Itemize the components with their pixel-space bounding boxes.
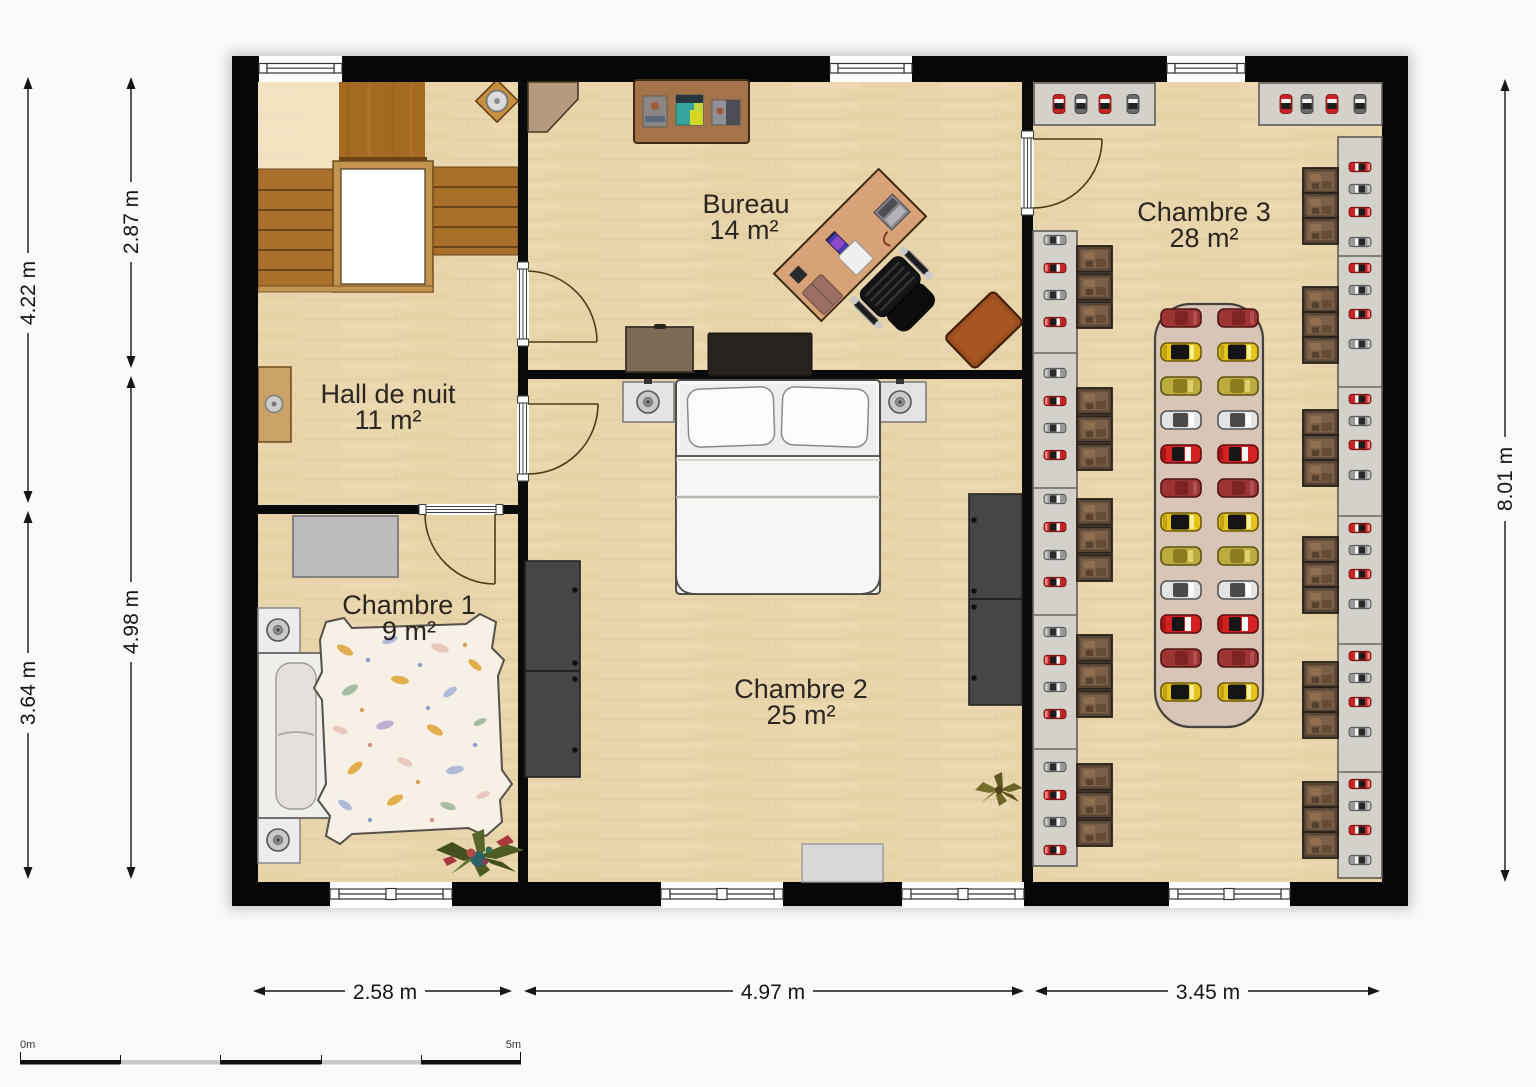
svg-text:2.58 m: 2.58 m: [353, 981, 417, 1004]
svg-text:8.01 m: 8.01 m: [1494, 447, 1517, 511]
svg-text:2.87 m: 2.87 m: [120, 190, 143, 254]
svg-text:4.22 m: 4.22 m: [17, 261, 40, 325]
svg-text:3.45 m: 3.45 m: [1176, 981, 1240, 1004]
svg-text:5m: 5m: [506, 1039, 521, 1051]
svg-text:4.97 m: 4.97 m: [741, 981, 805, 1004]
svg-text:14 m²: 14 m²: [709, 215, 778, 245]
svg-text:9 m²: 9 m²: [382, 616, 436, 646]
svg-text:11 m²: 11 m²: [354, 405, 421, 435]
svg-text:25 m²: 25 m²: [766, 700, 835, 730]
svg-text:3.64 m: 3.64 m: [17, 661, 40, 725]
svg-text:28 m²: 28 m²: [1169, 223, 1238, 253]
svg-text:4.98 m: 4.98 m: [120, 590, 143, 654]
svg-text:0m: 0m: [20, 1039, 35, 1051]
